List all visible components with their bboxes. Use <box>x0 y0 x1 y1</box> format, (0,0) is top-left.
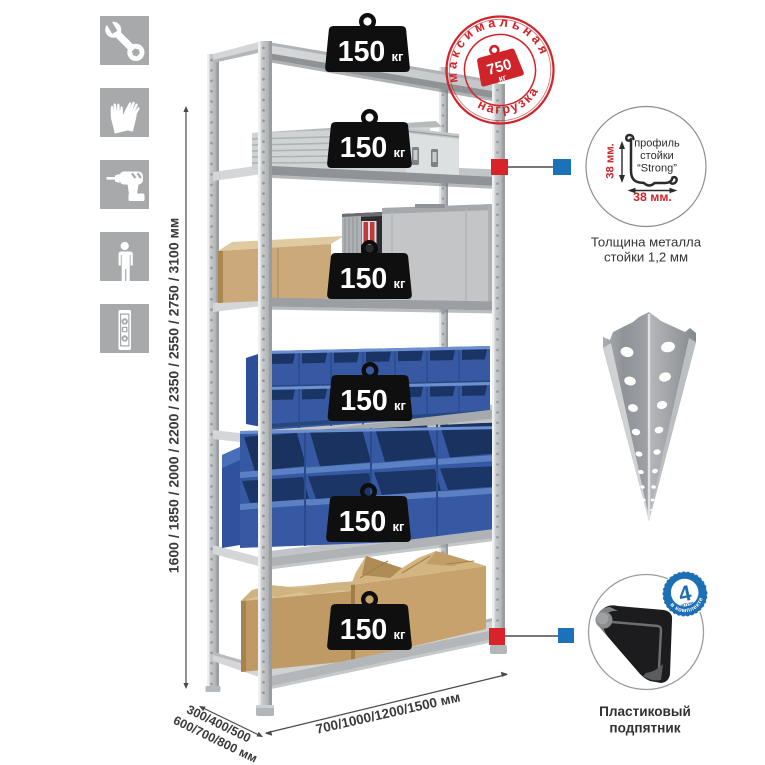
svg-text:стойки 1,2 мм: стойки 1,2 мм <box>604 250 688 265</box>
svg-text:кг: кг <box>394 398 407 413</box>
svg-text:150: 150 <box>340 614 388 646</box>
svg-text:кг: кг <box>393 519 406 534</box>
svg-text:Пластиковый: Пластиковый <box>599 704 691 719</box>
svg-text:150: 150 <box>340 132 388 164</box>
svg-text:38 мм.: 38 мм. <box>633 190 672 204</box>
svg-text:“Strong”: “Strong” <box>637 163 677 175</box>
svg-text:кг: кг <box>394 276 407 291</box>
svg-text:кг: кг <box>394 627 407 642</box>
svg-text:профиль: профиль <box>634 138 680 150</box>
svg-text:150: 150 <box>339 506 387 538</box>
svg-text:кг: кг <box>392 49 405 64</box>
svg-text:стойки: стойки <box>640 150 674 162</box>
svg-text:подпятник: подпятник <box>609 721 680 736</box>
svg-text:150: 150 <box>340 263 388 295</box>
svg-text:1600 / 1850 / 2000 / 2200 / 23: 1600 / 1850 / 2000 / 2200 / 2350 / 2550 … <box>166 218 182 573</box>
svg-text:кг: кг <box>394 145 407 160</box>
svg-text:150: 150 <box>340 385 388 417</box>
svg-text:38 мм.: 38 мм. <box>605 143 617 179</box>
svg-text:Толщина металла: Толщина металла <box>591 235 702 250</box>
svg-text:150: 150 <box>338 36 386 68</box>
